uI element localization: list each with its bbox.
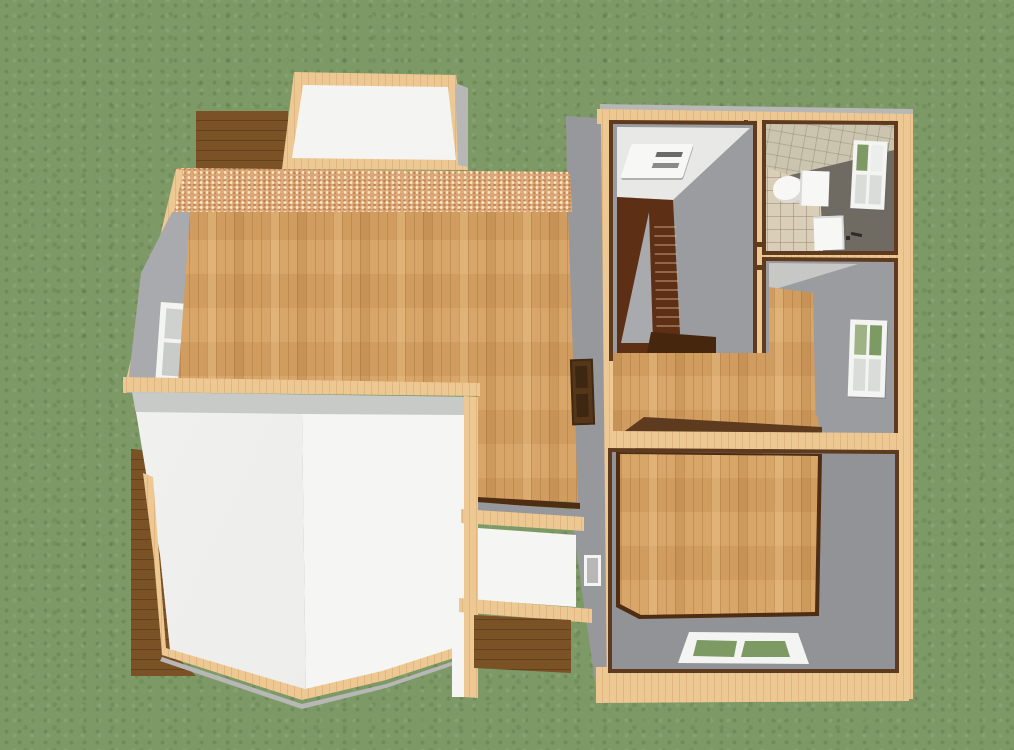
ceiling-light	[620, 144, 693, 178]
window-pane	[855, 174, 868, 204]
window-pane	[868, 359, 881, 391]
window-pane	[868, 175, 882, 205]
upper-deck	[196, 111, 288, 171]
sink-faucet	[846, 236, 850, 240]
window-pane	[870, 145, 883, 172]
window-pane	[856, 144, 868, 171]
bathroom-window	[850, 140, 888, 210]
3d-view-canvas[interactable]	[0, 0, 1014, 750]
door-panel	[575, 366, 588, 388]
door-panel	[576, 394, 589, 417]
west-wall-opening	[584, 555, 601, 586]
window-pane	[164, 308, 184, 339]
ceiling-light-vent	[655, 152, 683, 157]
entry-door	[570, 359, 595, 426]
bathroom-sink	[813, 215, 844, 250]
opening-shadow	[587, 558, 598, 583]
window-pane	[854, 325, 867, 355]
ceiling-light-vent	[652, 163, 680, 168]
window-pane	[853, 359, 866, 391]
window-pane	[869, 325, 882, 355]
toilet-tank	[799, 171, 829, 207]
middle-room-window	[848, 319, 888, 397]
